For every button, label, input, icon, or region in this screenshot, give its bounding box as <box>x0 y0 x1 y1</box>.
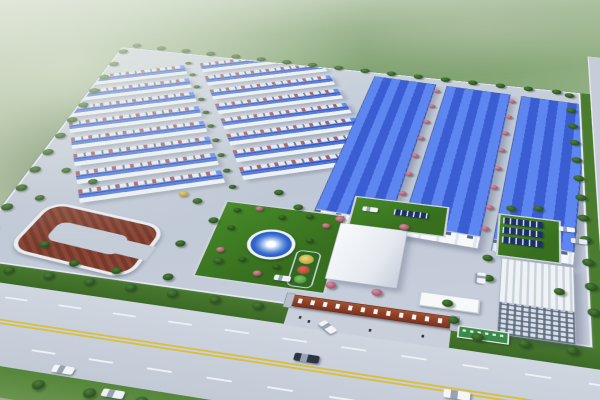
lawn-tree <box>271 263 281 269</box>
flower-blob-red <box>296 265 311 275</box>
white-hall-building <box>325 222 408 288</box>
aerial-render-scene: Aerial 3D rendering of a walled industri… <box>0 0 600 400</box>
workshop-facade-doors <box>63 66 181 82</box>
lawn-tree <box>305 237 314 243</box>
alley-tree <box>228 184 237 189</box>
lawn-tree <box>237 256 247 262</box>
alley-tree <box>193 85 200 89</box>
blossom-tree <box>485 204 494 210</box>
blossom-tree <box>505 115 513 119</box>
alley-tree <box>184 61 191 65</box>
flower-blob-green <box>293 275 308 284</box>
car <box>477 272 486 284</box>
blossom-tree <box>428 104 436 108</box>
north-boundary-tree <box>156 46 167 51</box>
lawn-tree <box>226 225 236 231</box>
blossom-tree <box>494 166 502 171</box>
lawn-tree <box>305 214 314 220</box>
person-figure <box>421 335 424 338</box>
blossom-tree <box>433 89 440 93</box>
blossom-tree <box>411 153 419 158</box>
blossom-tree <box>489 184 497 189</box>
blossom-tree <box>508 99 515 103</box>
alley-tree <box>217 153 225 158</box>
alley-tree <box>202 110 210 114</box>
alley-tree <box>188 73 195 77</box>
blossom-tree <box>398 190 407 195</box>
flower-blob-yellow <box>297 254 315 265</box>
alley-tree <box>197 97 205 101</box>
alley-tree <box>222 168 231 173</box>
lawn-tree <box>252 270 262 276</box>
alley-tree <box>211 138 219 143</box>
lawn-tree <box>232 207 241 212</box>
lawn-tree <box>277 214 286 220</box>
ground-plane <box>0 21 600 400</box>
blossom-tree <box>480 225 489 231</box>
north-boundary-tree <box>180 49 191 54</box>
blossom-tree <box>501 131 509 136</box>
north-boundary-tree <box>205 51 216 56</box>
blossom-tree <box>417 136 425 141</box>
alley-tree <box>206 124 214 128</box>
blossom-tree <box>497 148 505 153</box>
lawn-tree <box>215 246 225 252</box>
north-boundary-tree <box>131 43 142 48</box>
blossom-tree <box>404 171 413 176</box>
fountain <box>242 227 300 263</box>
blossom-tree <box>422 119 430 123</box>
lawn-tree <box>321 223 330 229</box>
lawn-tree <box>255 206 264 211</box>
